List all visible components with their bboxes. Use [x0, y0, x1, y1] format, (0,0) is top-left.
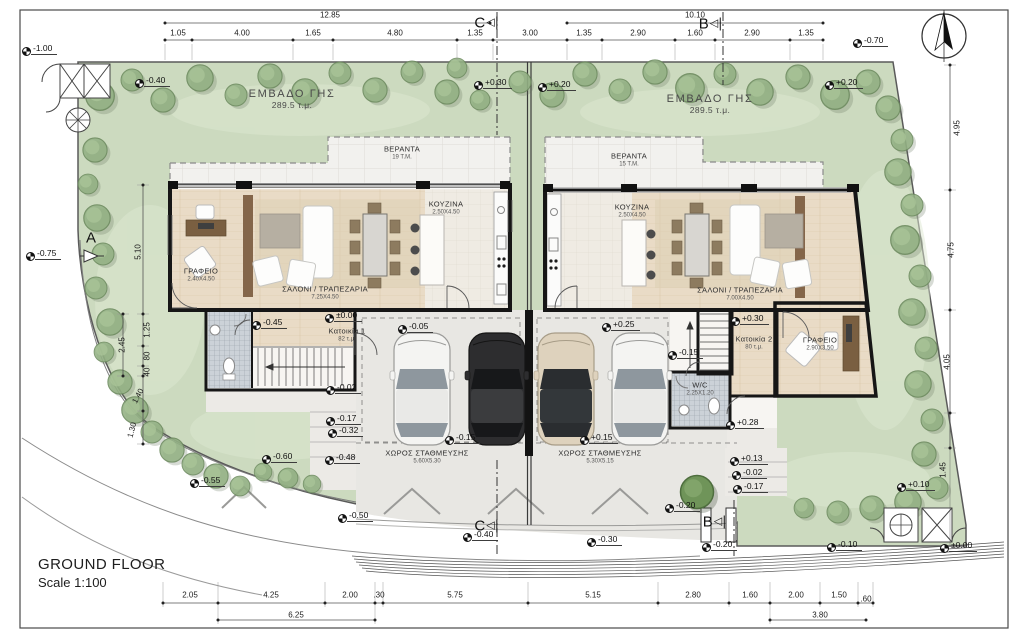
drawing-scale: Scale 1:100 [38, 575, 165, 590]
title-block: GROUND FLOOR Scale 1:100 [38, 556, 165, 590]
drawing-title: GROUND FLOOR [38, 556, 165, 573]
north-arrow-icon [922, 10, 966, 62]
floor-plan-sheet: ΓΡΑΦΕΙΟ2.40X4.50ΣΑΛΟΝΙ / ΤΡΑΠΕΖΑΡΙΑ7.25X… [0, 0, 1024, 636]
site-plan-graphic [0, 0, 1024, 636]
